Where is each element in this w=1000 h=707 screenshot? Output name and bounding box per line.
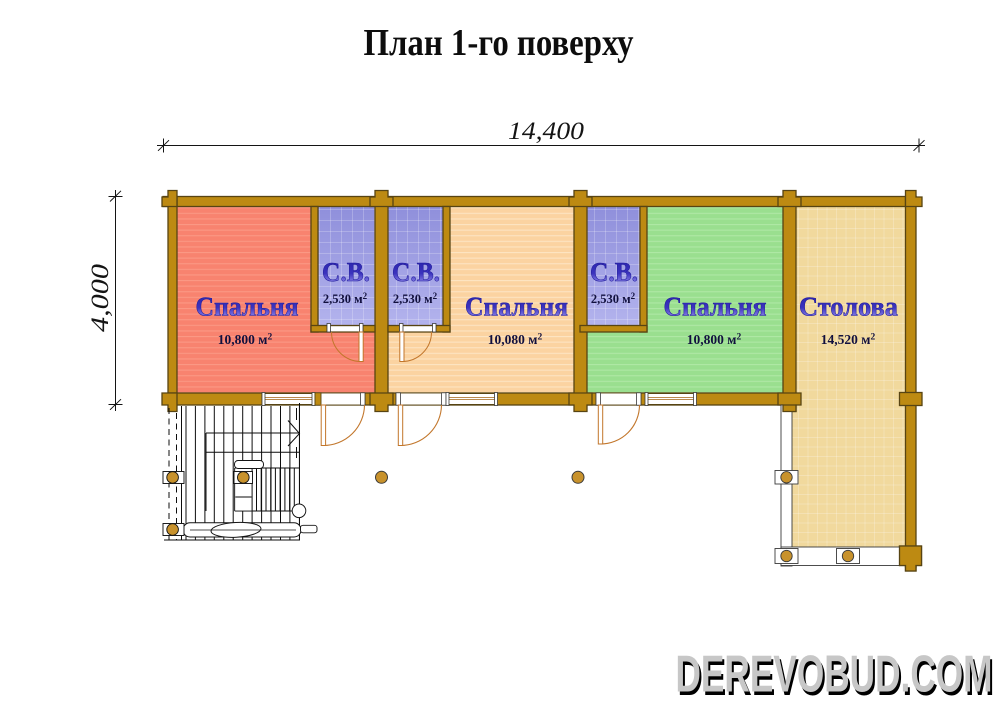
- svg-text:С.В.: С.В.: [590, 257, 638, 287]
- svg-text:2,530 м2: 2,530 м2: [323, 291, 368, 306]
- svg-text:Спальня: Спальня: [196, 291, 299, 322]
- svg-text:4,000: 4,000: [87, 263, 114, 332]
- svg-text:2,530 м2: 2,530 м2: [393, 291, 438, 306]
- svg-text:10,800 м2: 10,800 м2: [687, 332, 742, 347]
- svg-text:Спальня: Спальня: [664, 291, 767, 322]
- svg-text:DEREVOBUD.COM: DEREVOBUD.COM: [676, 646, 993, 704]
- svg-text:Спальня: Спальня: [465, 291, 568, 322]
- svg-text:10,800 м2: 10,800 м2: [218, 332, 273, 347]
- svg-text:10,080 м2: 10,080 м2: [488, 332, 543, 347]
- svg-text:Столова: Столова: [799, 291, 898, 322]
- svg-text:С.В.: С.В.: [322, 257, 370, 287]
- svg-text:14,520 м2: 14,520 м2: [821, 332, 876, 347]
- svg-text:С.В.: С.В.: [392, 257, 440, 287]
- svg-text:План 1-го поверху: План 1-го поверху: [364, 22, 634, 64]
- svg-text:2,530 м2: 2,530 м2: [591, 291, 636, 306]
- svg-text:14,400: 14,400: [508, 118, 585, 145]
